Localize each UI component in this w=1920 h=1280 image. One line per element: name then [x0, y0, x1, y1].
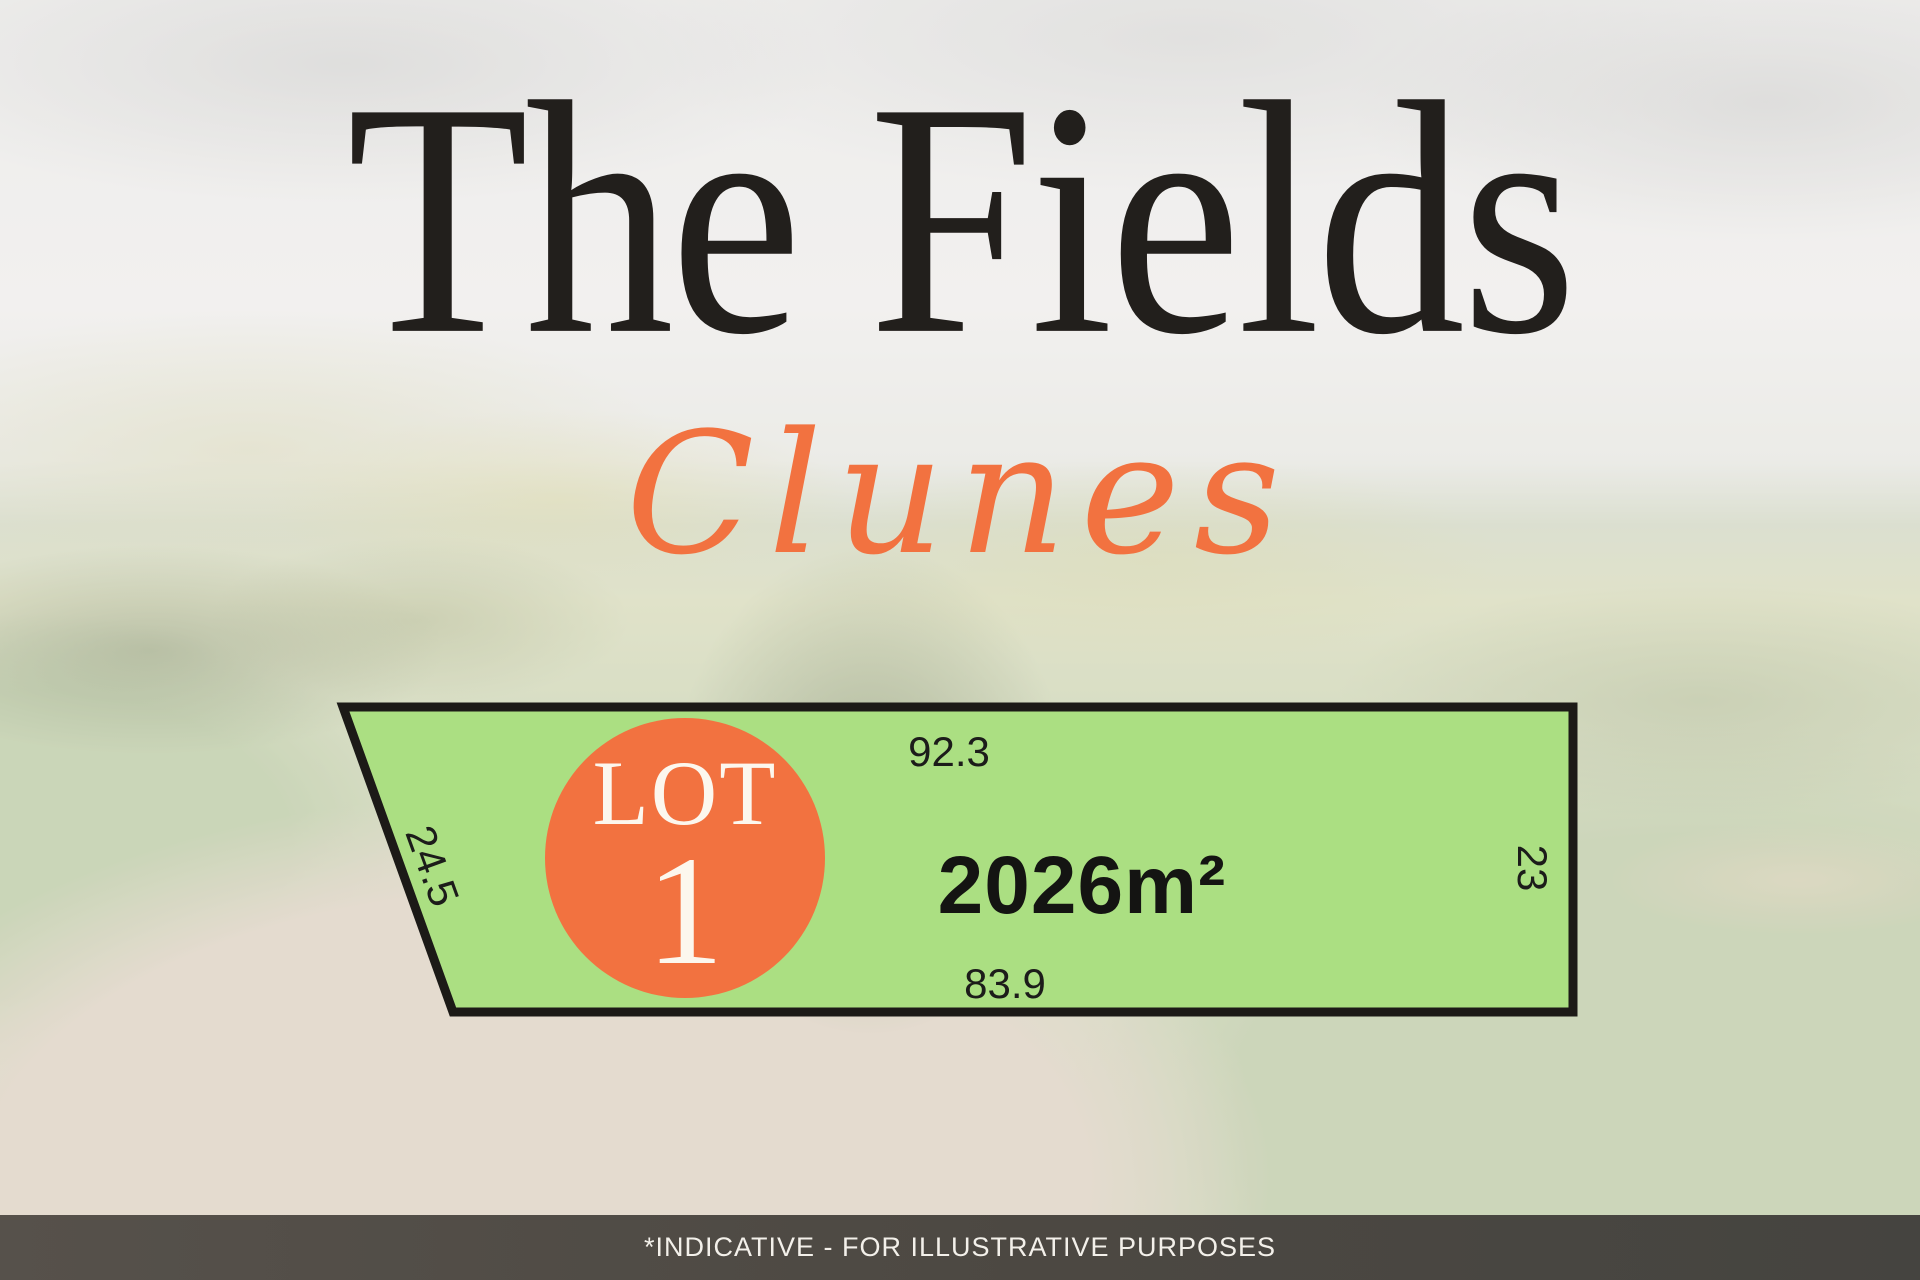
dimension-right: 23: [1508, 845, 1556, 892]
dimension-top: 92.3: [908, 728, 990, 776]
disclaimer-bar: *INDICATIVE - FOR ILLUSTRATIVE PURPOSES: [0, 1215, 1920, 1280]
lot-area-value: 2026m²: [938, 839, 1227, 933]
lot-plan: [0, 0, 1920, 1280]
disclaimer-text: *INDICATIVE - FOR ILLUSTRATIVE PURPOSES: [644, 1232, 1276, 1263]
lot-number: 1: [646, 839, 724, 983]
lot-number-badge: LOT 1: [545, 718, 825, 998]
dimension-bottom: 83.9: [964, 960, 1046, 1008]
poster: The Fields Clunes LOT 1 2026m² 92.3 24.5…: [0, 0, 1920, 1280]
